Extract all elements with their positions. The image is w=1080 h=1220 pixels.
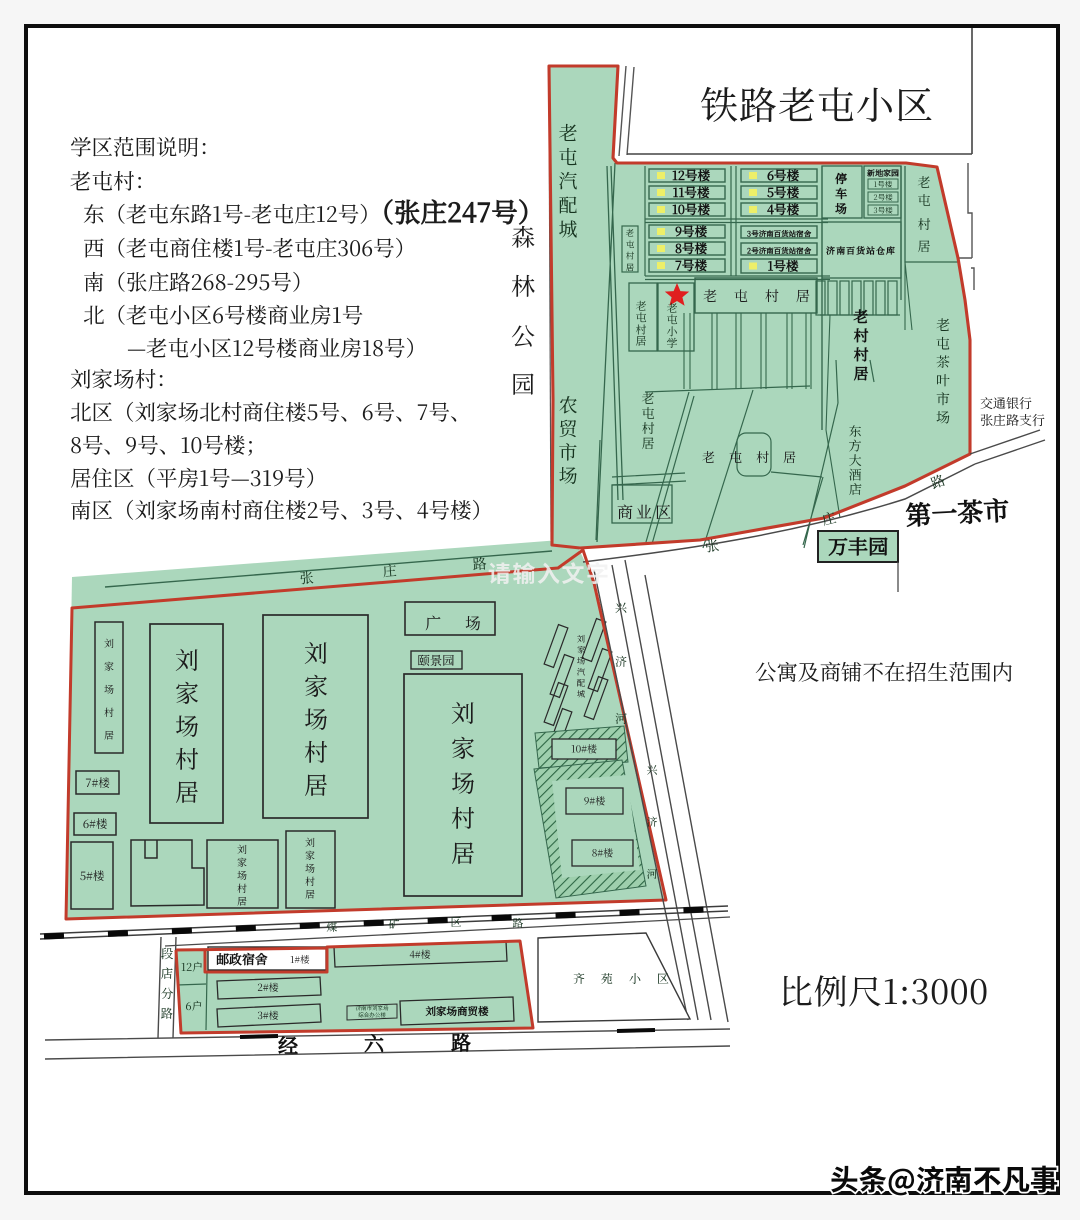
svg-text:北（老屯小区6号楼商业房1号: 北（老屯小区6号楼商业房1号 — [83, 299, 363, 330]
svg-text:11号楼: 11号楼 — [673, 183, 710, 201]
svg-text:10#楼: 10#楼 — [571, 741, 597, 756]
svg-text:6#楼: 6#楼 — [83, 816, 108, 832]
svg-text:9号楼: 9号楼 — [675, 222, 708, 240]
svg-text:刘家场商贸楼: 刘家场商贸楼 — [426, 1004, 489, 1019]
svg-text:齐苑小区: 齐苑小区 — [573, 970, 685, 987]
svg-text:刘家场汽配城: 刘家场汽配城 — [576, 633, 586, 700]
svg-text:路: 路 — [513, 915, 524, 931]
svg-text:—老屯小区12号楼商业房18号）: —老屯小区12号楼商业房18号） — [127, 332, 427, 363]
svg-text:区: 区 — [451, 914, 462, 930]
svg-text:6号楼: 6号楼 — [767, 166, 800, 184]
svg-text:1#楼: 1#楼 — [290, 952, 310, 966]
svg-text:老屯茶叶市场: 老屯茶叶市场 — [936, 315, 951, 428]
svg-text:学区范围说明：: 学区范围说明： — [70, 131, 221, 162]
svg-text:矿: 矿 — [389, 916, 400, 932]
svg-text:商业区: 商业区 — [617, 500, 674, 523]
svg-text:4#楼: 4#楼 — [409, 946, 430, 961]
svg-text:老屯村居: 老屯村居 — [636, 298, 647, 349]
svg-text:老屯村居: 老屯村居 — [641, 388, 654, 452]
svg-text:3号济南百货站宿舍: 3号济南百货站宿舍 — [747, 229, 812, 240]
svg-text:济南百货站仓库: 济南百货站仓库 — [826, 244, 896, 257]
svg-text:5#楼: 5#楼 — [80, 868, 105, 884]
svg-text:综合办公楼: 综合办公楼 — [358, 1011, 386, 1019]
svg-text:12号楼: 12号楼 — [672, 166, 710, 184]
svg-text:老屯汽配城: 老屯汽配城 — [558, 119, 577, 242]
svg-text:头条@济南不凡事: 头条@济南不凡事 — [830, 1158, 1058, 1199]
svg-text:邮政宿舍: 邮政宿舍 — [216, 949, 268, 968]
svg-text:老屯村：: 老屯村： — [70, 165, 156, 196]
svg-text:4号楼: 4号楼 — [767, 200, 799, 218]
svg-text:9#楼: 9#楼 — [584, 793, 605, 808]
svg-text:第一茶市: 第一茶市 — [904, 491, 1010, 533]
svg-text:刘家场村居: 刘家场村居 — [305, 834, 315, 901]
svg-text:颐景园: 颐景园 — [417, 651, 455, 669]
svg-text:2号楼: 2号楼 — [873, 192, 893, 203]
svg-text:12户: 12户 — [181, 959, 203, 975]
svg-text:8#楼: 8#楼 — [592, 845, 613, 860]
svg-text:路: 路 — [451, 1027, 472, 1056]
svg-text:请输入文字: 请输入文字 — [488, 555, 611, 589]
svg-text:路: 路 — [472, 553, 487, 574]
svg-text:刘家场村居: 刘家场村居 — [237, 841, 247, 908]
svg-text:公寓及商铺不在招生范围内: 公寓及商铺不在招生范围内 — [755, 656, 1013, 687]
svg-text:张: 张 — [299, 567, 314, 588]
svg-text:六: 六 — [364, 1028, 384, 1057]
svg-text:刘家场村居: 刘家场村居 — [304, 634, 328, 801]
svg-text:比例尺1:3000: 比例尺1:3000 — [779, 965, 989, 1014]
svg-text:停车场: 停车场 — [835, 170, 848, 217]
svg-text:经: 经 — [278, 1030, 298, 1059]
svg-text:1号楼: 1号楼 — [768, 257, 799, 275]
svg-text:老屯村居: 老屯村居 — [702, 447, 810, 466]
svg-text:2#楼: 2#楼 — [257, 979, 278, 994]
svg-text:老屯村居: 老屯村居 — [703, 286, 827, 306]
svg-text:老屯村居: 老屯村居 — [625, 227, 635, 274]
svg-text:2号济南百货站宿舍: 2号济南百货站宿舍 — [747, 246, 812, 257]
svg-text:农贸市场: 农贸市场 — [558, 391, 577, 489]
svg-text:刘家场村居: 刘家场村居 — [451, 694, 475, 869]
svg-text:南区（刘家场南村商住楼2号、3号、4号楼）: 南区（刘家场南村商住楼2号、3号、4号楼） — [70, 494, 493, 525]
svg-text:3#楼: 3#楼 — [257, 1007, 278, 1022]
svg-text:6户: 6户 — [185, 998, 202, 1014]
svg-text:5号楼: 5号楼 — [767, 183, 800, 201]
svg-text:新地家园: 新地家园 — [867, 168, 899, 179]
svg-text:南（张庄路268-295号）: 南（张庄路268-295号） — [83, 266, 313, 297]
svg-text:8号楼: 8号楼 — [675, 239, 708, 257]
svg-text:1号楼: 1号楼 — [874, 179, 893, 190]
svg-text:张: 张 — [704, 535, 721, 557]
svg-text:7#楼: 7#楼 — [85, 775, 110, 791]
svg-text:东方大酒店: 东方大酒店 — [848, 421, 862, 498]
svg-text:北区（刘家场北村商住楼5号、6号、7号、: 北区（刘家场北村商住楼5号、6号、7号、 — [70, 396, 471, 427]
svg-text:老屯村居: 老屯村居 — [917, 172, 930, 255]
svg-text:居住区（平房1号—319号）: 居住区（平房1号—319号） — [70, 462, 327, 493]
svg-text:庄: 庄 — [382, 560, 397, 581]
svg-text:10号楼: 10号楼 — [672, 200, 710, 218]
svg-text:广场: 广场 — [425, 611, 505, 634]
svg-text:8号、9号、10号楼；: 8号、9号、10号楼； — [70, 429, 267, 460]
svg-text:7号楼: 7号楼 — [675, 256, 707, 274]
svg-text:张庄路支行: 张庄路支行 — [980, 410, 1046, 429]
svg-text:西（老屯商住楼1号-老屯庄306号）: 西（老屯商住楼1号-老屯庄306号） — [83, 232, 416, 263]
svg-text:铁路老屯小区: 铁路老屯小区 — [700, 75, 934, 130]
svg-text:3号楼: 3号楼 — [873, 205, 893, 216]
svg-text:煤: 煤 — [327, 919, 338, 935]
svg-text:刘家场村居: 刘家场村居 — [175, 641, 199, 808]
svg-text:老村村居: 老村村居 — [852, 306, 868, 384]
svg-text:老屯小学: 老屯小学 — [667, 300, 678, 351]
svg-text:万丰园: 万丰园 — [828, 531, 888, 560]
svg-text:刘家场村：: 刘家场村： — [70, 363, 178, 394]
